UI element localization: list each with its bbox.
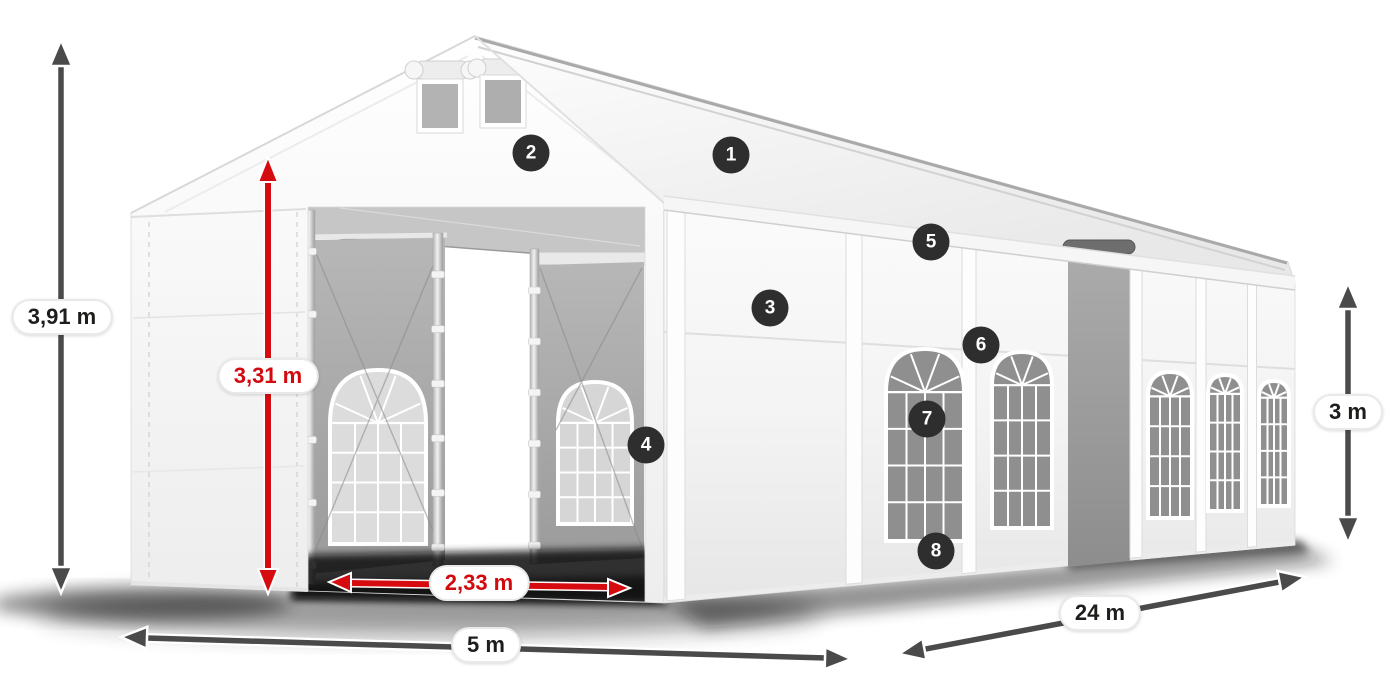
- hotspot-8[interactable]: 8: [918, 533, 955, 570]
- hotspot-4[interactable]: 4: [628, 427, 665, 464]
- hotspot-1[interactable]: 1: [713, 137, 750, 174]
- dimension-label-entrance-height: 3,31 m: [218, 358, 319, 394]
- dimension-label-wall-height: 3 m: [1313, 394, 1383, 430]
- dimension-label-front-width: 5 m: [451, 627, 521, 663]
- hotspot-6[interactable]: 6: [963, 327, 1000, 364]
- dimension-label-side-length: 24 m: [1059, 595, 1141, 631]
- hotspot-7[interactable]: 7: [909, 401, 946, 438]
- dimension-label-entrance-width: 2,33 m: [429, 565, 530, 601]
- hotspot-3[interactable]: 3: [752, 290, 789, 327]
- tent-illustration: [0, 0, 1400, 700]
- interior-door-window: [328, 368, 428, 546]
- hotspot-2[interactable]: 2: [513, 135, 550, 172]
- tent-interior: [292, 205, 656, 602]
- diagram-stage: 3,91 m 3,31 m 2,33 m 5 m 24 m 3 m 1 2 3 …: [0, 0, 1400, 700]
- interior-door-window: [556, 380, 634, 526]
- side-door-opening: [1068, 253, 1130, 567]
- hotspot-5[interactable]: 5: [913, 224, 950, 261]
- dimension-label-total-height: 3,91 m: [12, 299, 113, 335]
